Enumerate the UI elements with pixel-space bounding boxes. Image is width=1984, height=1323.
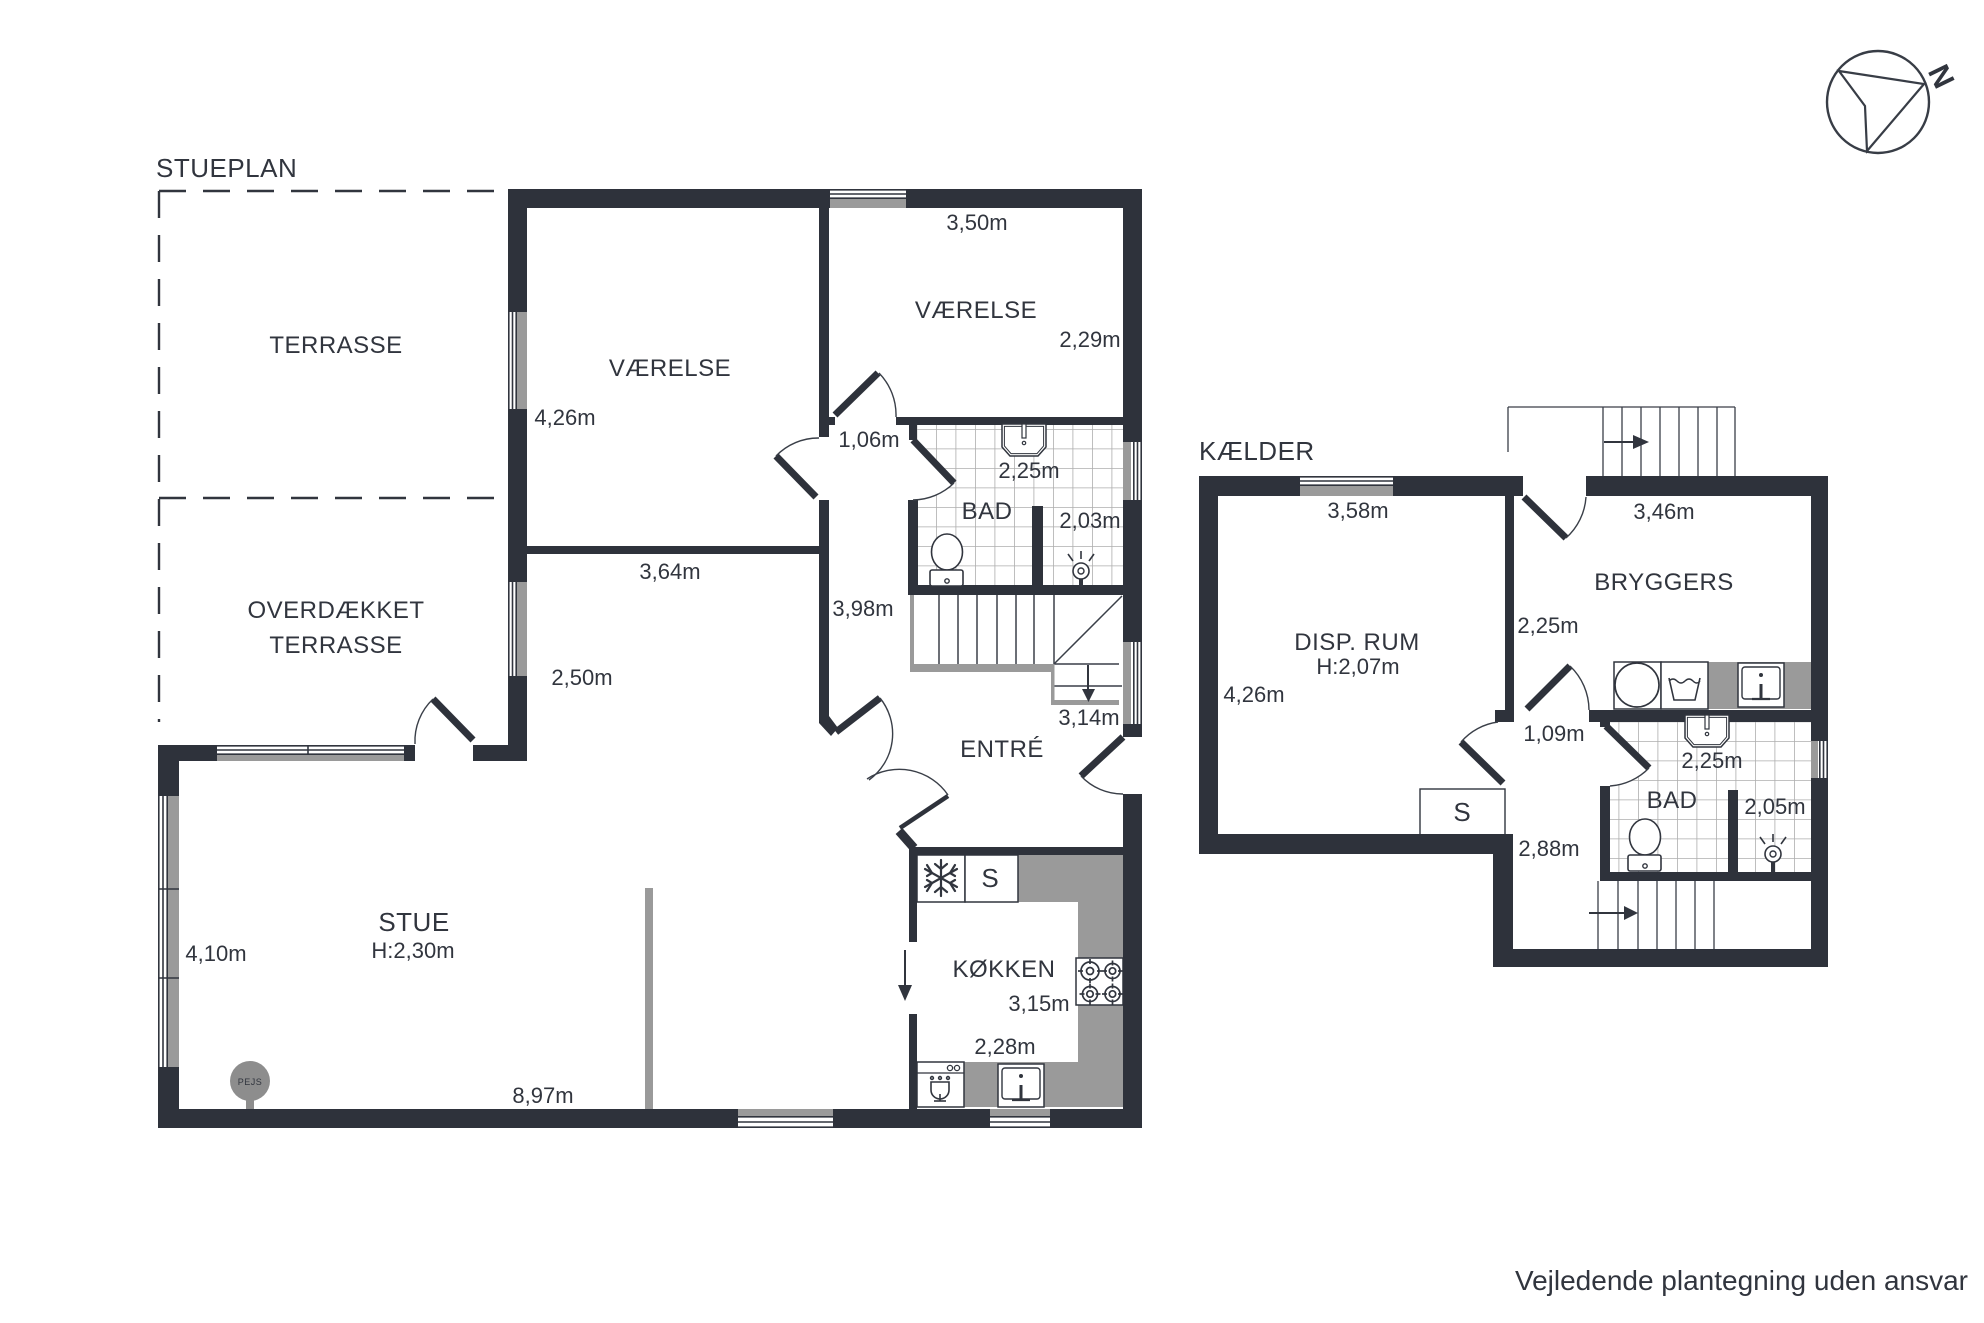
svg-text:S: S	[981, 863, 998, 893]
svg-text:VÆRELSE: VÆRELSE	[915, 297, 1037, 324]
svg-text:4,26m: 4,26m	[534, 405, 595, 430]
svg-text:KÆLDER: KÆLDER	[1199, 436, 1315, 466]
svg-text:3,98m: 3,98m	[832, 596, 893, 621]
svg-text:BRYGGERS: BRYGGERS	[1594, 569, 1734, 596]
svg-text:2,03m: 2,03m	[1059, 508, 1120, 533]
svg-text:2,25m: 2,25m	[1517, 613, 1578, 638]
svg-text:VÆRELSE: VÆRELSE	[609, 355, 731, 382]
svg-text:STUE: STUE	[378, 907, 449, 937]
svg-text:3,64m: 3,64m	[639, 559, 700, 584]
svg-text:3,15m: 3,15m	[1008, 991, 1069, 1016]
svg-text:STUEPLAN: STUEPLAN	[156, 153, 297, 183]
svg-text:8,97m: 8,97m	[512, 1083, 573, 1108]
svg-text:S: S	[1453, 797, 1470, 827]
svg-text:2,25m: 2,25m	[998, 458, 1059, 483]
svg-text:2,88m: 2,88m	[1518, 836, 1579, 861]
svg-text:PEJS: PEJS	[238, 1077, 263, 1087]
svg-text:H:2,07m: H:2,07m	[1316, 654, 1399, 679]
svg-text:3,14m: 3,14m	[1058, 705, 1119, 730]
svg-text:TERRASSE: TERRASSE	[269, 332, 402, 359]
svg-text:KØKKEN: KØKKEN	[952, 956, 1055, 983]
svg-text:3,50m: 3,50m	[946, 210, 1007, 235]
svg-text:2,05m: 2,05m	[1744, 794, 1805, 819]
svg-text:2,50m: 2,50m	[551, 665, 612, 690]
svg-text:3,46m: 3,46m	[1633, 499, 1694, 524]
svg-text:1,09m: 1,09m	[1523, 721, 1584, 746]
svg-text:4,26m: 4,26m	[1223, 682, 1284, 707]
svg-text:3,58m: 3,58m	[1327, 498, 1388, 523]
svg-text:BAD: BAD	[962, 498, 1013, 525]
svg-text:ENTRÉ: ENTRÉ	[960, 736, 1044, 763]
svg-text:TERRASSE: TERRASSE	[269, 632, 402, 659]
svg-text:1,06m: 1,06m	[838, 427, 899, 452]
svg-text:H:2,30m: H:2,30m	[371, 938, 454, 963]
svg-text:Vejledende plantegning uden an: Vejledende plantegning uden ansvar	[1515, 1265, 1968, 1296]
svg-text:2,28m: 2,28m	[974, 1034, 1035, 1059]
svg-text:2,25m: 2,25m	[1681, 748, 1742, 773]
svg-text:DISP. RUM: DISP. RUM	[1294, 629, 1419, 656]
svg-text:4,10m: 4,10m	[185, 941, 246, 966]
svg-text:OVERDÆKKET: OVERDÆKKET	[247, 597, 424, 624]
svg-text:BAD: BAD	[1647, 787, 1698, 814]
svg-text:2,29m: 2,29m	[1059, 327, 1120, 352]
